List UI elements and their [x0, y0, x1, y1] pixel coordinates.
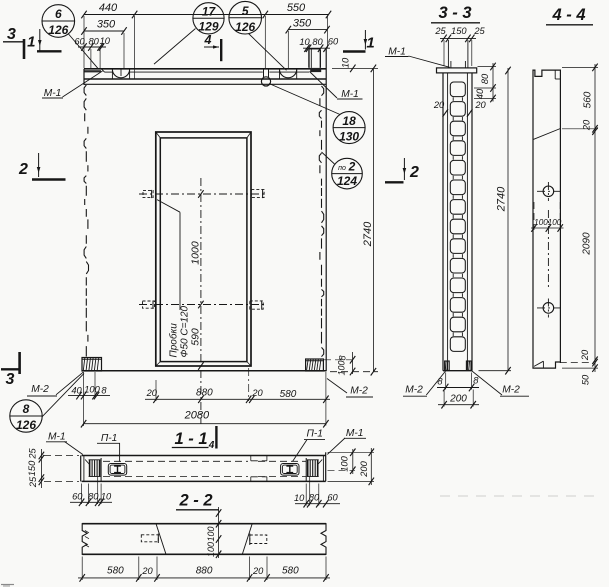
- svg-text:80: 80: [312, 37, 323, 47]
- svg-text:100: 100: [206, 526, 216, 541]
- svg-text:20: 20: [433, 100, 445, 110]
- svg-text:17: 17: [202, 5, 217, 19]
- svg-text:200: 200: [449, 394, 467, 405]
- svg-text:18: 18: [342, 114, 356, 128]
- svg-text:2080: 2080: [184, 410, 210, 422]
- svg-text:25: 25: [434, 26, 446, 36]
- svg-text:25: 25: [473, 26, 485, 36]
- svg-text:880: 880: [196, 566, 213, 577]
- svg-text:4 - 4: 4 - 4: [551, 6, 585, 24]
- svg-text:60: 60: [327, 493, 338, 503]
- svg-text:350: 350: [293, 18, 312, 30]
- svg-text:М-1: М-1: [44, 88, 62, 99]
- svg-text:129: 129: [198, 20, 218, 34]
- svg-text:20: 20: [580, 349, 590, 361]
- svg-text:25: 25: [28, 476, 38, 488]
- svg-text:60: 60: [328, 37, 339, 47]
- svg-text:100: 100: [340, 455, 350, 471]
- svg-text:М-1: М-1: [388, 47, 406, 58]
- svg-text:100: 100: [206, 542, 216, 557]
- svg-text:100: 100: [548, 218, 562, 227]
- svg-text:150: 150: [451, 26, 467, 36]
- svg-text:580: 580: [282, 566, 299, 577]
- svg-text:126: 126: [235, 20, 255, 34]
- svg-text:3 - 3: 3 - 3: [438, 4, 471, 22]
- svg-text:100: 100: [534, 218, 548, 227]
- svg-text:590: 590: [190, 328, 202, 346]
- svg-text:550: 550: [287, 2, 306, 14]
- svg-text:10: 10: [101, 491, 112, 501]
- svg-text:Ф50 С=120: Ф50 С=120: [180, 305, 191, 357]
- svg-text:2740: 2740: [496, 186, 508, 212]
- svg-text:М-2: М-2: [350, 386, 368, 397]
- svg-text:М-1: М-1: [48, 432, 66, 443]
- svg-text:10: 10: [100, 36, 111, 46]
- svg-text:124: 124: [337, 174, 357, 188]
- svg-text:2: 2: [348, 160, 356, 174]
- svg-text:3: 3: [7, 26, 16, 43]
- svg-text:2740: 2740: [362, 221, 374, 247]
- svg-text:150: 150: [27, 460, 37, 476]
- svg-text:126: 126: [16, 418, 36, 432]
- svg-text:М-2: М-2: [31, 384, 49, 395]
- svg-text:2090: 2090: [582, 232, 593, 256]
- svg-text:П-1: П-1: [306, 429, 322, 440]
- svg-text:8: 8: [338, 355, 348, 360]
- svg-text:80: 80: [309, 493, 320, 503]
- svg-text:20: 20: [252, 566, 264, 576]
- svg-text:440: 440: [99, 2, 118, 14]
- svg-text:4: 4: [204, 33, 212, 47]
- svg-text:20: 20: [474, 100, 486, 110]
- svg-text:126: 126: [48, 23, 68, 37]
- svg-text:25: 25: [28, 448, 38, 460]
- svg-text:2 - 2: 2 - 2: [178, 492, 212, 510]
- svg-text:3: 3: [6, 371, 15, 388]
- svg-text:8: 8: [101, 386, 107, 396]
- svg-text:1 - 1: 1 - 1: [174, 430, 207, 448]
- svg-text:20: 20: [251, 388, 263, 398]
- svg-text:1000: 1000: [189, 241, 201, 265]
- svg-text:8: 8: [473, 376, 479, 386]
- svg-text:880: 880: [196, 388, 213, 399]
- svg-text:100: 100: [337, 360, 347, 375]
- svg-text:2: 2: [409, 164, 419, 181]
- svg-text:2: 2: [18, 161, 28, 178]
- svg-text:1: 1: [27, 34, 35, 51]
- svg-text:М-2: М-2: [502, 385, 520, 396]
- svg-text:560: 560: [583, 91, 594, 108]
- svg-text:580: 580: [107, 566, 124, 577]
- svg-text:20: 20: [582, 119, 592, 131]
- svg-text:580: 580: [280, 389, 297, 400]
- svg-text:10: 10: [294, 493, 305, 503]
- svg-text:10: 10: [299, 37, 310, 47]
- svg-text:10: 10: [341, 57, 351, 68]
- svg-text:350: 350: [97, 19, 116, 31]
- svg-text:по: по: [338, 165, 346, 172]
- svg-text:130: 130: [339, 129, 359, 143]
- svg-text:200: 200: [359, 460, 369, 477]
- svg-text:40: 40: [475, 88, 485, 99]
- svg-text:Пробки: Пробки: [168, 323, 180, 358]
- svg-text:М-2: М-2: [405, 385, 423, 396]
- svg-text:8: 8: [23, 402, 30, 416]
- svg-text:80: 80: [480, 73, 490, 84]
- svg-text:100: 100: [84, 385, 100, 395]
- svg-text:5: 5: [242, 4, 249, 18]
- svg-text:80: 80: [89, 37, 100, 47]
- svg-text:20: 20: [141, 566, 153, 576]
- svg-text:50: 50: [581, 374, 591, 385]
- svg-text:40: 40: [71, 386, 82, 396]
- svg-text:М-1: М-1: [346, 428, 364, 439]
- svg-text:М-1: М-1: [341, 89, 359, 100]
- svg-text:6: 6: [55, 7, 62, 21]
- svg-text:1: 1: [366, 35, 374, 52]
- svg-text:4: 4: [208, 440, 215, 451]
- svg-text:П-1: П-1: [101, 433, 117, 444]
